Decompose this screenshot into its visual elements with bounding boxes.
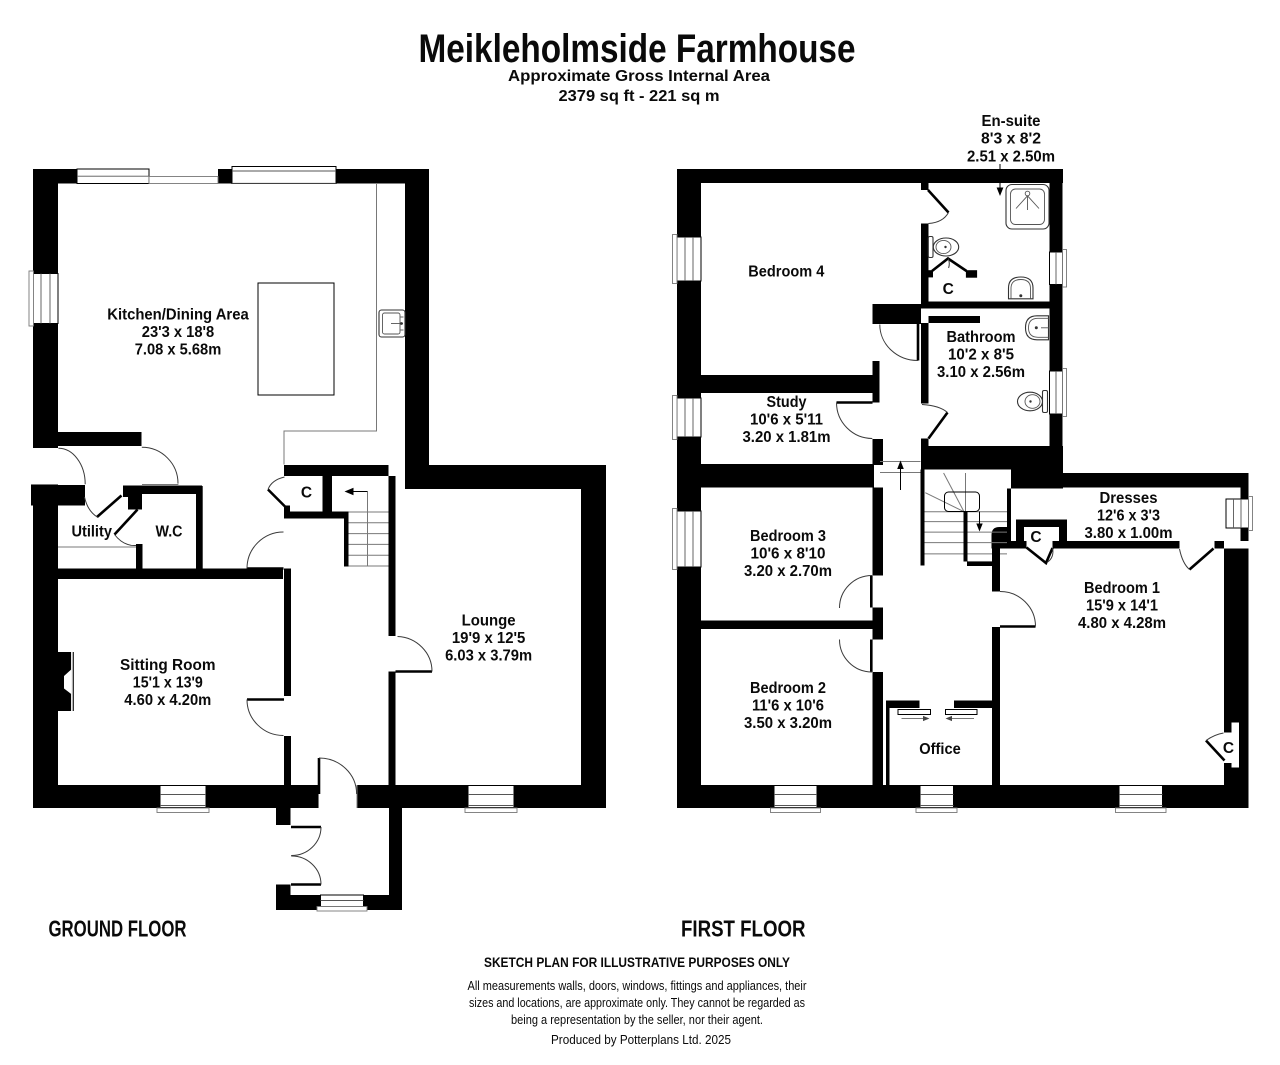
svg-text:10'6 x 5'11: 10'6 x 5'11 — [750, 412, 823, 429]
svg-text:FIRST FLOOR: FIRST FLOOR — [681, 916, 806, 942]
svg-text:Dresses: Dresses — [1100, 490, 1158, 507]
svg-text:Study: Study — [767, 394, 807, 411]
svg-text:6.03 x 3.79m: 6.03 x 3.79m — [445, 648, 532, 665]
svg-text:sizes and locations, are appro: sizes and locations, are approximate onl… — [469, 996, 805, 1010]
svg-text:Bathroom: Bathroom — [947, 329, 1016, 346]
svg-text:All measurements walls, doors,: All measurements walls, doors, windows, … — [468, 979, 807, 993]
svg-text:15'9 x 14'1: 15'9 x 14'1 — [1086, 598, 1158, 615]
svg-text:8'3 x 8'2: 8'3 x 8'2 — [981, 131, 1041, 148]
svg-text:3.10 x 2.56m: 3.10 x 2.56m — [937, 364, 1025, 381]
svg-text:3.20 x 2.70m: 3.20 x 2.70m — [744, 563, 832, 580]
svg-text:C: C — [943, 281, 954, 298]
svg-text:3.50 x 3.20m: 3.50 x 3.20m — [744, 715, 832, 732]
svg-text:19'9 x 12'5: 19'9 x 12'5 — [452, 630, 526, 647]
svg-text:Lounge: Lounge — [462, 613, 516, 630]
svg-text:4.80 x 4.28m: 4.80 x 4.28m — [1078, 615, 1166, 632]
svg-text:10'6 x 8'10: 10'6 x 8'10 — [751, 546, 826, 563]
svg-text:Bedroom 2: Bedroom 2 — [750, 680, 826, 697]
svg-text:15'1 x 13'9: 15'1 x 13'9 — [133, 675, 203, 692]
svg-text:SKETCH PLAN FOR ILLUSTRATIVE P: SKETCH PLAN FOR ILLUSTRATIVE PURPOSES ON… — [484, 955, 790, 970]
svg-text:C: C — [301, 485, 312, 502]
svg-text:Bedroom 4: Bedroom 4 — [748, 264, 824, 281]
svg-text:Utility: Utility — [71, 524, 112, 541]
svg-text:3.20 x 1.81m: 3.20 x 1.81m — [743, 429, 831, 446]
svg-text:7.08 x 5.68m: 7.08 x 5.68m — [135, 342, 222, 359]
svg-text:Office: Office — [919, 741, 961, 758]
svg-text:12'6 x 3'3: 12'6 x 3'3 — [1097, 508, 1160, 525]
svg-text:C: C — [1223, 740, 1234, 757]
svg-text:Sitting Room: Sitting Room — [120, 657, 216, 674]
svg-text:2.51 x 2.50m: 2.51 x 2.50m — [967, 149, 1055, 166]
svg-text:10'2 x 8'5: 10'2 x 8'5 — [948, 347, 1014, 364]
svg-text:2379 sq ft - 221 sq m: 2379 sq ft - 221 sq m — [559, 88, 720, 105]
svg-text:GROUND FLOOR: GROUND FLOOR — [49, 916, 187, 942]
svg-text:Kitchen/Dining Area: Kitchen/Dining Area — [107, 307, 249, 324]
svg-text:Meikleholmside Farmhouse: Meikleholmside Farmhouse — [419, 27, 856, 71]
svg-text:Bedroom 1: Bedroom 1 — [1084, 580, 1160, 597]
svg-text:Bedroom 3: Bedroom 3 — [750, 528, 826, 545]
svg-text:11'6 x 10'6: 11'6 x 10'6 — [752, 698, 824, 715]
svg-text:C: C — [1030, 529, 1041, 546]
svg-text:4.60 x 4.20m: 4.60 x 4.20m — [124, 692, 211, 709]
svg-text:En-suite: En-suite — [982, 113, 1041, 130]
svg-text:3.80 x 1.00m: 3.80 x 1.00m — [1085, 525, 1173, 542]
svg-text:being a representation by the: being a representation by the seller, no… — [511, 1013, 763, 1027]
svg-text:23'3 x 18'8: 23'3 x 18'8 — [142, 324, 215, 341]
svg-text:Produced by Potterplans Ltd. 2: Produced by Potterplans Ltd. 2025 — [551, 1033, 731, 1047]
svg-text:Approximate Gross Internal Are: Approximate Gross Internal Area — [508, 68, 770, 85]
svg-text:W.C: W.C — [156, 524, 183, 541]
